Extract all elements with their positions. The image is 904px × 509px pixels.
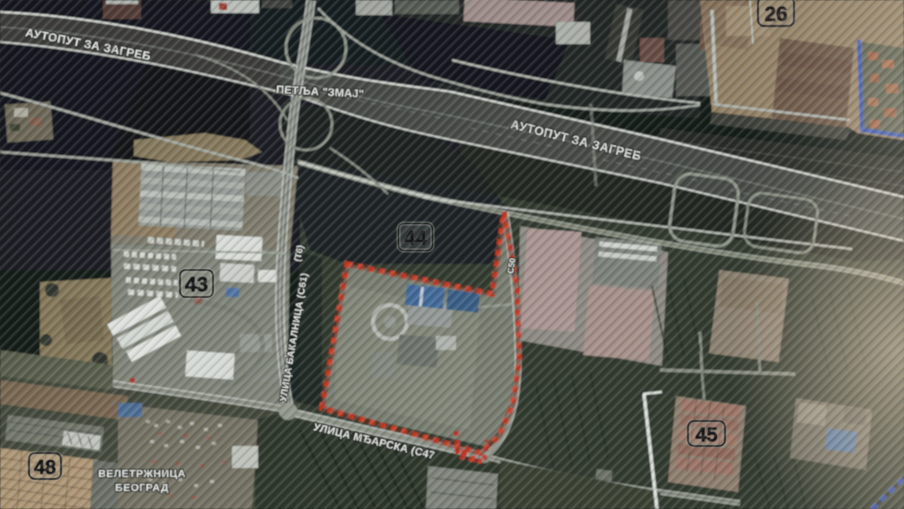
- svg-text:БЕОГРАД: БЕОГРАД: [115, 482, 169, 494]
- svg-text:26: 26: [764, 3, 787, 26]
- svg-text:48: 48: [34, 457, 56, 479]
- svg-text:45: 45: [695, 425, 717, 447]
- svg-text:43: 43: [185, 274, 208, 297]
- svg-text:ВЕЛЕТРЖНИЦА: ВЕЛЕТРЖНИЦА: [98, 468, 186, 480]
- svg-text:44: 44: [404, 227, 428, 250]
